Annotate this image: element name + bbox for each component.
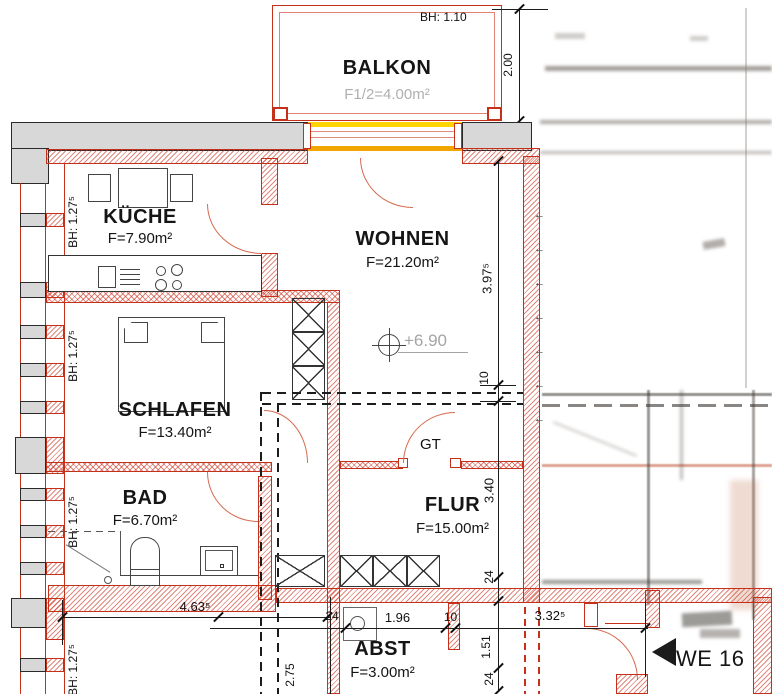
balcony-post <box>487 107 502 121</box>
shaft-box <box>292 366 325 400</box>
wardrobe-box <box>275 555 325 587</box>
window-pier <box>20 401 46 414</box>
room-name-kueche: KÜCHE <box>75 206 205 229</box>
window-frame-line <box>311 131 459 132</box>
wall-new <box>523 156 540 603</box>
dim-wall24-right: 24 <box>482 562 496 592</box>
wall-existing <box>11 122 308 151</box>
door-post <box>584 603 598 627</box>
window-band <box>308 122 462 127</box>
wardrobe-box <box>340 555 373 587</box>
drainer-line <box>120 274 140 275</box>
wall-new <box>46 562 64 575</box>
drainer-line <box>120 284 140 285</box>
door-post <box>454 123 462 149</box>
bath-door-swing <box>207 472 258 522</box>
level-marker-icon <box>372 345 406 346</box>
parapet-label: BH: 1.27⁵ <box>66 324 80 388</box>
wall-new <box>46 488 64 501</box>
window-pier <box>11 598 46 628</box>
window-pier <box>20 213 46 227</box>
dim-wall10-top: 10 <box>477 363 491 393</box>
hob-burner <box>155 279 167 291</box>
dim-ext-line <box>330 597 331 694</box>
shaft-box <box>292 332 325 366</box>
toilet-base <box>130 569 160 586</box>
dashed-edge <box>262 403 523 405</box>
dim-abst-width: 1.96 <box>375 610 420 625</box>
dim-line <box>519 9 520 121</box>
dim-jamb-10: 10 <box>438 610 463 624</box>
wall-new <box>46 363 64 377</box>
wall-new <box>616 674 648 694</box>
dim-entry-151: 1.51 <box>479 627 493 667</box>
room-area-flur: F=15.00m² <box>385 520 520 537</box>
room-name-abst: ABST <box>320 638 445 661</box>
dim-bottom-width: 4.63⁵ <box>160 599 230 614</box>
scan-line <box>545 66 772 71</box>
wall-new <box>46 658 64 672</box>
shower-edge <box>48 531 120 532</box>
wall-new <box>261 158 278 205</box>
room-area-wohnen: F=21.20m² <box>330 254 475 271</box>
chair <box>88 174 111 202</box>
dim-wall24-left: 24 <box>318 609 346 623</box>
room-name-balkon: BALKON <box>312 57 462 80</box>
balcony-post <box>273 107 288 121</box>
window-frame-line <box>311 137 459 138</box>
drainer-line <box>120 269 140 270</box>
scan-line <box>745 8 747 388</box>
wall-existing <box>11 148 49 184</box>
window-pier <box>20 325 46 339</box>
room-area-schlafen: F=13.40m² <box>105 424 245 441</box>
wall-new <box>276 588 772 603</box>
shower-edge <box>120 531 121 576</box>
scan-grid-line <box>542 464 772 467</box>
wall-new <box>46 213 64 227</box>
wardrobe-box <box>407 555 440 587</box>
dim-line <box>498 161 499 691</box>
parapet-label: BH: 1.27⁵ <box>66 638 80 694</box>
wall-cross <box>46 462 272 472</box>
unit-tag: WE 16 <box>676 646 745 672</box>
wall-new <box>327 302 340 694</box>
window-band <box>308 146 462 151</box>
window-pier <box>20 488 46 501</box>
scan-grid-line <box>542 404 772 407</box>
shower-drain <box>104 576 112 584</box>
schlafen-door-swing <box>264 410 308 463</box>
hob-burner <box>156 266 166 276</box>
scan-blob <box>702 238 725 250</box>
room-name-flur: FLUR <box>385 494 520 517</box>
dim-left-275: 2.75 <box>283 653 297 694</box>
washbasin-inner <box>205 550 233 571</box>
wall-new <box>46 401 64 414</box>
dim-line <box>62 617 330 618</box>
dim-balcony-depth: 2.00 <box>501 35 515 95</box>
room-name-schlafen: SCHLAFEN <box>105 399 245 422</box>
scan-line <box>540 120 772 124</box>
window-pier <box>20 525 46 538</box>
dim-flur-height: 3.40 <box>482 461 497 521</box>
scan-blob <box>555 33 585 39</box>
unit-arrow-icon <box>652 638 676 666</box>
hob-burner <box>171 264 183 276</box>
door-post <box>303 123 311 149</box>
room-area-abst: F=3.00m² <box>320 664 445 681</box>
level-mark-label: +6.90 <box>404 331 447 351</box>
scan-grid-line <box>647 390 650 605</box>
dim-ext-line <box>645 601 646 677</box>
parapet-label: BH: 1.27⁵ <box>66 490 80 554</box>
gt-door-tag: GT <box>420 436 441 453</box>
dashed-edge <box>260 392 262 694</box>
toilet <box>130 537 160 572</box>
level-mark-underline <box>398 352 468 353</box>
dim-wohnen-height: 3.97⁵ <box>480 249 495 309</box>
scan-blob <box>553 421 637 457</box>
wall-existing <box>462 122 532 151</box>
scan-blob <box>690 36 708 41</box>
room-area-kueche: F=7.90m² <box>75 230 205 247</box>
wall-face-line <box>605 623 648 624</box>
wall-cross <box>340 461 403 469</box>
kitchen-sink <box>98 266 116 288</box>
scan-grid-line <box>542 393 772 396</box>
illegible-stamp <box>682 611 733 628</box>
scan-line <box>540 151 772 154</box>
hob-burner <box>172 280 182 290</box>
room-name-wohnen: WOHNEN <box>330 228 475 251</box>
window-pier <box>20 658 46 672</box>
kitchen-door-swing <box>207 204 262 254</box>
illegible-stamp <box>700 629 740 638</box>
balcony-door-swing <box>360 158 413 208</box>
dim-line <box>210 628 648 629</box>
window-pier <box>15 437 46 474</box>
dim-ext-line <box>62 600 63 645</box>
table <box>118 168 168 208</box>
floor-plan: ← ← ← ← ← ← ← BH: 1.10 BALKON F1/2=4.00m… <box>0 0 772 694</box>
window-pier <box>20 363 46 377</box>
washbasin-drain <box>220 564 224 568</box>
balcony-parapet-label: BH: 1.10 <box>420 10 467 24</box>
wall-new <box>753 597 772 694</box>
window-pier <box>20 282 46 298</box>
scan-grid-line <box>680 390 683 480</box>
room-area-balkon: F1/2=4.00m² <box>312 86 462 103</box>
drainer-line <box>120 279 140 280</box>
dim-ext-line <box>480 401 516 402</box>
vanity-line <box>120 575 258 576</box>
scan-grid-line <box>542 580 702 584</box>
shower-diagonal <box>66 544 111 573</box>
dim-entry-width: 3.32⁵ <box>520 608 580 623</box>
shaft-box <box>292 298 325 332</box>
dim-wall24-bottom: 24 <box>482 664 496 694</box>
chair <box>170 174 193 202</box>
wardrobe-box <box>373 555 407 587</box>
wall-new <box>46 325 64 339</box>
room-name-bad: BAD <box>85 487 205 510</box>
window-pier <box>20 562 46 575</box>
room-area-bad: F=6.70m² <box>85 512 205 529</box>
